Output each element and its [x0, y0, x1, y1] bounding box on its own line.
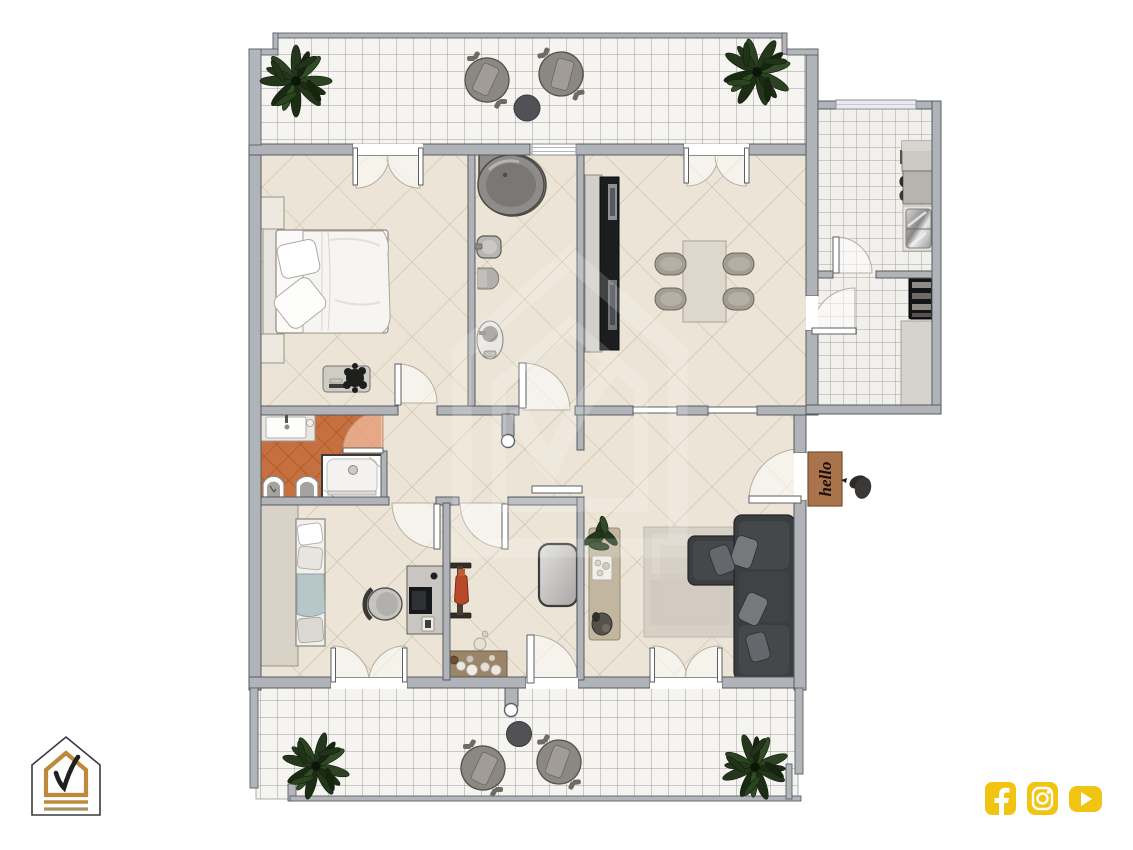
svg-text:hello: hello — [816, 462, 835, 497]
